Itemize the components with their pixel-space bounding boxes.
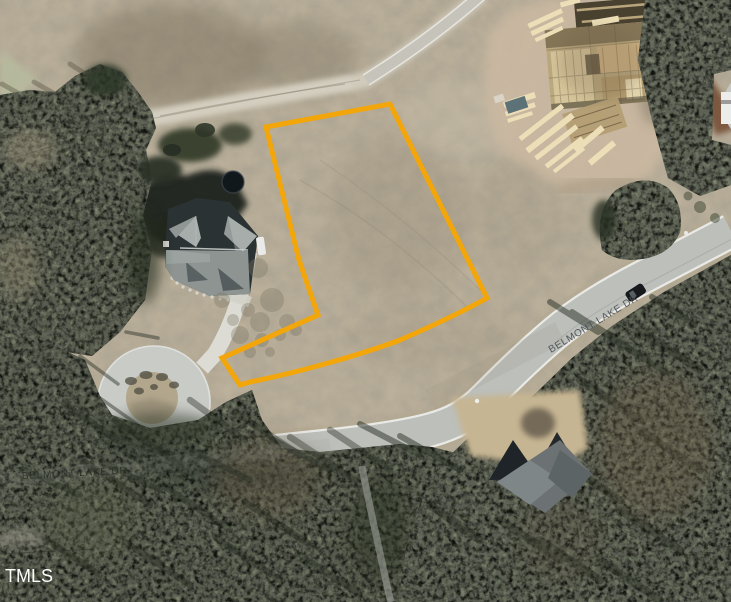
- svg-text:TMLS: TMLS: [5, 566, 53, 586]
